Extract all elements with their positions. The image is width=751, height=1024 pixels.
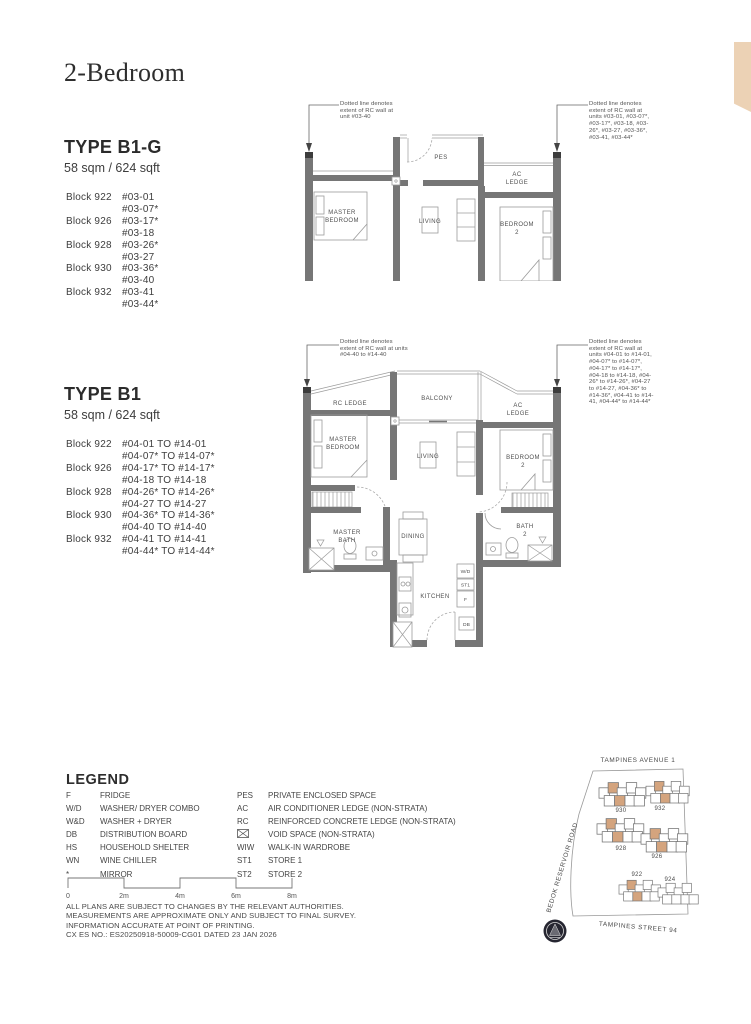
legend-row: WNWINE CHILLER xyxy=(66,854,236,867)
block-row: Block 932#04-41 TO #14-41 xyxy=(66,534,215,546)
block-label-926: 926 xyxy=(652,854,663,860)
road-label-top: TAMPINES AVENUE 1 xyxy=(601,757,676,764)
block-row: Block 926#03-17* xyxy=(66,216,158,228)
disclaimer: ALL PLANS ARE SUBJECT TO CHANGES BY THE … xyxy=(66,902,366,940)
legend-left-column: FFRIDGE W/DWASHER/ DRYER COMBO W&DWASHER… xyxy=(66,789,236,881)
type-b1-unit-list: Block 922#04-01 TO #14-01 #04-07* TO #14… xyxy=(66,439,215,558)
svg-text:AC: AC xyxy=(512,172,521,178)
block-row: Block 932#03-41 xyxy=(66,287,158,299)
block-row: #03-18 xyxy=(66,228,158,240)
legend-heading: LEGEND xyxy=(66,772,129,788)
type-b1g-heading: TYPE B1-G xyxy=(64,137,162,158)
svg-text:AC: AC xyxy=(513,403,522,409)
svg-text:BEDROOM: BEDROOM xyxy=(326,445,360,451)
type-b1g-unit-list: Block 922#03-01 #03-07* Block 926#03-17*… xyxy=(66,192,158,311)
disclaimer-line: MEASUREMENTS ARE APPROXIMATE ONLY AND SU… xyxy=(66,911,366,920)
type-b1g-area: 58 sqm / 624 sqft xyxy=(64,161,160,175)
block-label-928: 928 xyxy=(616,846,627,852)
room-label-bath2: BATH 2 xyxy=(516,524,533,538)
floorplan-b1g: PES AC LEDGE MASTER BEDROOM LIVING BEDRO… xyxy=(295,95,595,281)
room-label-rc-ledge: RC LEDGE xyxy=(333,401,367,407)
block-row: #04-18 TO #14-18 xyxy=(66,475,215,487)
block-row: Block 922#04-01 TO #14-01 xyxy=(66,439,215,451)
brochure-page: 2-Bedroom TYPE B1-G 58 sqm / 624 sqft Bl… xyxy=(0,0,751,1024)
block-row: Block 928#04-26* TO #14-26* xyxy=(66,487,215,499)
void-space-icon xyxy=(237,828,268,841)
b1-bath2-fixtures xyxy=(486,537,552,561)
block-row: #03-40 xyxy=(66,275,158,287)
room-label-bedroom2: BEDROOM 2 xyxy=(500,222,534,236)
room-label-ac-ledge: AC LEDGE xyxy=(506,172,528,186)
scale-tick-label: 8m xyxy=(287,893,297,900)
b1g-bed2 xyxy=(500,207,553,281)
svg-text:BEDROOM: BEDROOM xyxy=(500,222,534,228)
room-label-master-bedroom: MASTER BEDROOM xyxy=(326,437,360,451)
corner-tab-decoration xyxy=(734,42,751,112)
block-row: #03-27 xyxy=(66,252,158,264)
block-row: #04-40 TO #14-40 xyxy=(66,522,215,534)
legend-right-column: PESPRIVATE ENCLOSED SPACE ACAIR CONDITIO… xyxy=(237,789,467,881)
svg-text:2: 2 xyxy=(515,230,519,236)
svg-text:MASTER: MASTER xyxy=(333,530,361,536)
b1g-leader-right xyxy=(554,105,588,152)
room-label-living: LIVING xyxy=(419,219,441,225)
block-row: Block 928#03-26* xyxy=(66,240,158,252)
block-row: #04-07* TO #14-07* xyxy=(66,451,215,463)
block-row: #03-07* xyxy=(66,204,158,216)
legend-row: FFRIDGE xyxy=(66,789,236,802)
b1g-annotation-right: Dotted line denotes extent of RC wall at… xyxy=(589,101,656,141)
disclaimer-line: ALL PLANS ARE SUBJECT TO CHANGES BY THE … xyxy=(66,902,366,911)
label-f: F xyxy=(464,597,467,603)
block-row: #04-44* TO #14-44* xyxy=(66,546,215,558)
b1-kitchen-fixtures xyxy=(393,563,474,647)
svg-text:BATH: BATH xyxy=(516,524,533,530)
block-row: Block 930#04-36* TO #14-36* xyxy=(66,510,215,522)
block-row: Block 922#03-01 xyxy=(66,192,158,204)
label-st1: ST1 xyxy=(461,583,470,589)
scale-tick-label: 6m xyxy=(231,893,241,900)
legend-row: DBDISTRIBUTION BOARD xyxy=(66,828,236,841)
b1g-walls xyxy=(305,135,561,281)
legend-row: PESPRIVATE ENCLOSED SPACE xyxy=(237,789,467,802)
room-label-bedroom2: BEDROOM 2 xyxy=(506,455,540,469)
svg-text:BEDROOM: BEDROOM xyxy=(325,218,359,224)
svg-text:2: 2 xyxy=(523,532,527,538)
svg-text:BATH: BATH xyxy=(338,538,355,544)
block-label-924: 924 xyxy=(665,877,676,883)
room-label-master-bath: MASTER BATH xyxy=(333,530,361,544)
disclaimer-line: CX ES NO.: ES20250918-50009-CG01 DATED 2… xyxy=(66,930,366,939)
block-label-932: 932 xyxy=(655,806,666,812)
legend-row: HSHOUSEHOLD SHELTER xyxy=(66,841,236,854)
b1-annotation-right: Dotted line denotes extent of RC wall at… xyxy=(589,339,655,406)
svg-text:BEDROOM: BEDROOM xyxy=(506,455,540,461)
scale-tick-label: 4m xyxy=(175,893,185,900)
b1-leader-right xyxy=(554,345,588,387)
type-b1-area: 58 sqm / 624 sqft xyxy=(64,408,160,422)
page-title: 2-Bedroom xyxy=(64,58,185,88)
site-map: TAMPINES AVENUE 1 BEDOK RESERVOIR ROAD T… xyxy=(540,750,751,960)
legend-row: ACAIR CONDITIONER LEDGE (NON-STRATA) xyxy=(237,802,467,815)
void-space-box xyxy=(528,545,552,561)
block-row: Block 930#03-36* xyxy=(66,263,158,275)
block-row: #03-44* xyxy=(66,299,158,311)
type-b1-heading: TYPE B1 xyxy=(64,384,141,405)
label-db: DB xyxy=(463,622,470,628)
floorplan-b1: RC LEDGE BALCONY AC LEDGE MASTER BEDROOM… xyxy=(295,335,595,670)
b1-leader-left xyxy=(304,345,339,387)
void-space-box xyxy=(309,548,334,570)
room-label-ac-ledge: AC LEDGE xyxy=(507,403,529,417)
room-label-dining: DINING xyxy=(401,534,424,540)
scale-bar: 0 2m 4m 6m 8m xyxy=(64,874,314,904)
room-label-living: LIVING xyxy=(417,454,439,460)
legend-row: VOID SPACE (NON-STRATA) xyxy=(237,828,467,841)
shower-icon xyxy=(539,537,546,543)
svg-text:LEDGE: LEDGE xyxy=(507,411,529,417)
north-compass-icon xyxy=(544,920,567,943)
wardrobe xyxy=(512,493,548,509)
legend-row: WIWWALK-IN WARDROBE xyxy=(237,841,467,854)
wardrobe xyxy=(312,492,352,507)
legend-row: RCREINFORCED CONCRETE LEDGE (NON-STRATA) xyxy=(237,815,467,828)
room-label-master-bedroom: MASTER BEDROOM xyxy=(325,210,359,224)
legend-row: W&DWASHER + DRYER xyxy=(66,815,236,828)
disclaimer-line: INFORMATION ACCURATE AT POINT OF PRINTIN… xyxy=(66,921,366,930)
legend-row: ST1STORE 1 xyxy=(237,854,467,867)
svg-text:MASTER: MASTER xyxy=(328,210,356,216)
b1g-leader-left xyxy=(306,105,339,152)
scale-tick-label: 0 xyxy=(66,893,70,900)
block-label-922: 922 xyxy=(632,872,643,878)
svg-text:2: 2 xyxy=(521,463,525,469)
room-label-kitchen: KITCHEN xyxy=(420,594,449,600)
svg-text:LEDGE: LEDGE xyxy=(506,180,528,186)
legend-row: W/DWASHER/ DRYER COMBO xyxy=(66,802,236,815)
block-row: #04-27 TO #14-27 xyxy=(66,499,215,511)
void-space-box xyxy=(393,622,412,647)
room-label-pes: PES xyxy=(434,155,447,161)
block-row: Block 926#04-17* TO #14-17* xyxy=(66,463,215,475)
svg-text:MASTER: MASTER xyxy=(329,437,357,443)
shower-icon xyxy=(317,540,324,546)
road-label-bottom: TAMPINES STREET 94 xyxy=(599,921,678,935)
label-wd: W/D xyxy=(461,569,471,575)
b1g-master-bed xyxy=(314,192,367,240)
room-label-balcony: BALCONY xyxy=(421,396,452,402)
block-label-930: 930 xyxy=(616,808,627,814)
scale-tick-label: 2m xyxy=(119,893,129,900)
